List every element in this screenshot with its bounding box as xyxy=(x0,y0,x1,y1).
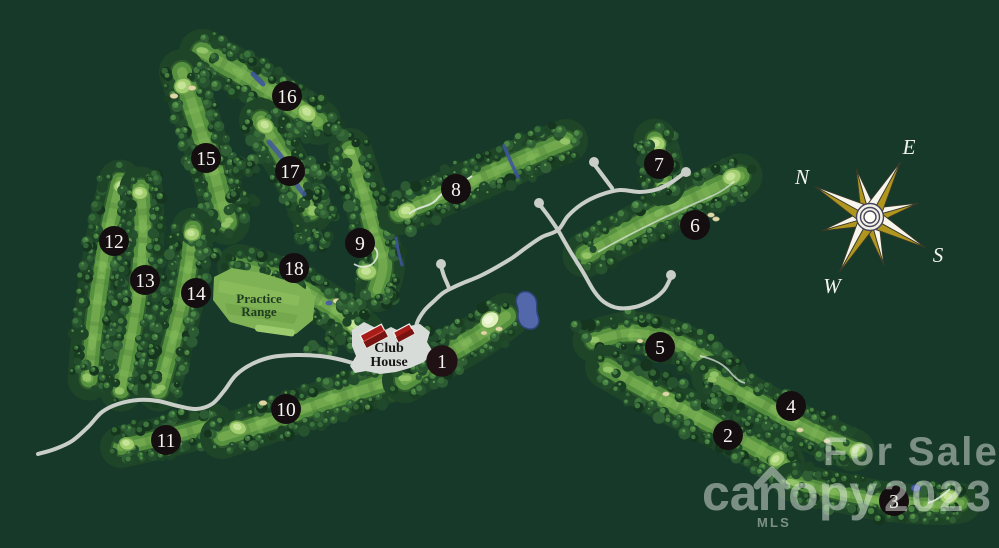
svg-text:12: 12 xyxy=(104,232,124,253)
svg-text:13: 13 xyxy=(135,271,155,292)
svg-text:9: 9 xyxy=(355,234,365,255)
svg-text:W: W xyxy=(823,274,843,298)
svg-text:16: 16 xyxy=(277,87,297,108)
svg-text:6: 6 xyxy=(690,216,700,237)
svg-text:4: 4 xyxy=(786,397,796,418)
svg-text:N: N xyxy=(794,165,810,189)
svg-text:E: E xyxy=(902,135,916,159)
svg-text:2023: 2023 xyxy=(884,472,994,521)
svg-text:10: 10 xyxy=(276,400,296,421)
svg-text:S: S xyxy=(933,243,944,267)
svg-text:15: 15 xyxy=(196,149,216,170)
svg-text:MLS: MLS xyxy=(757,515,791,530)
svg-text:2: 2 xyxy=(723,426,733,447)
svg-text:Club: Club xyxy=(374,341,404,356)
svg-text:17: 17 xyxy=(280,162,300,183)
svg-text:canopy: canopy xyxy=(702,465,877,521)
svg-text:1: 1 xyxy=(437,352,447,373)
svg-text:18: 18 xyxy=(284,259,304,280)
svg-text:5: 5 xyxy=(655,338,665,359)
svg-text:7: 7 xyxy=(654,155,664,176)
svg-text:House: House xyxy=(370,355,407,370)
svg-text:8: 8 xyxy=(451,180,461,201)
svg-text:Range: Range xyxy=(241,304,277,319)
svg-text:14: 14 xyxy=(186,284,206,305)
svg-text:11: 11 xyxy=(157,431,176,452)
